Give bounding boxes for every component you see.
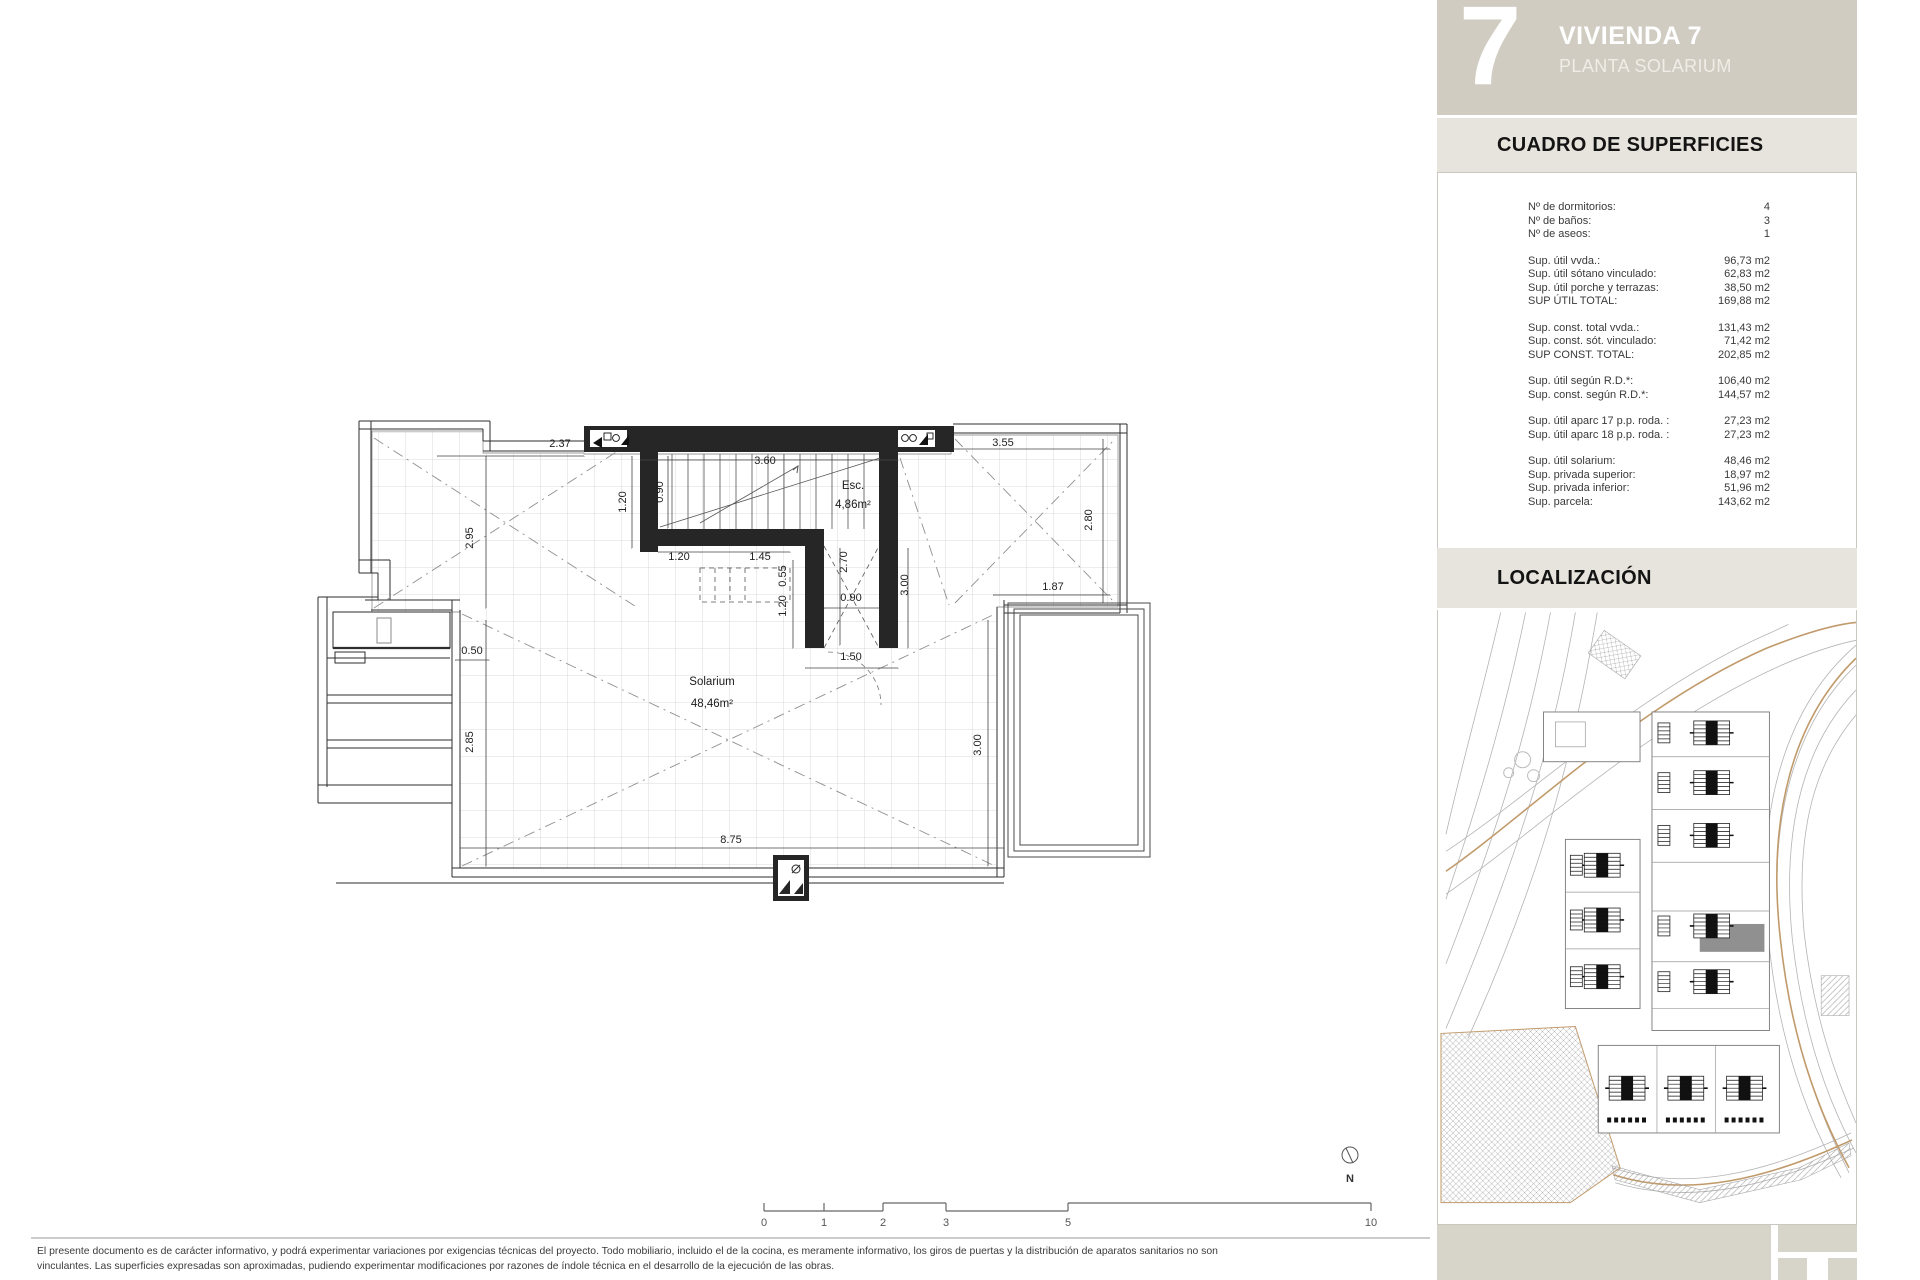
row-label: Nº de dormitorios: <box>1528 201 1616 215</box>
dimension-label: 2.80 <box>1083 509 1095 530</box>
row-label: Sup. útil aparc 18 p.p. roda. : <box>1528 429 1669 443</box>
table-row: Sup. útil aparc 17 p.p. roda. :27,23 m2 <box>1528 415 1770 429</box>
row-label: Sup. útil porche y terrazas: <box>1528 282 1659 296</box>
table-row: Sup. útil según R.D.*:106,40 m2 <box>1528 375 1770 389</box>
row-label: Sup. const. según R.D.*: <box>1528 389 1648 403</box>
row-label: Nº de baños: <box>1528 215 1591 229</box>
scale-bar-labels: 0123510 <box>761 1217 1377 1229</box>
bottom-symbol-box <box>773 855 809 901</box>
row-value: 62,83 m2 <box>1724 268 1770 282</box>
disclaimer-line-1: El presente documento es de carácter inf… <box>37 1244 1427 1259</box>
table-row: Sup. const. total vvda.:131,43 m2 <box>1528 322 1770 336</box>
row-label: Sup. const. sót. vinculado: <box>1528 335 1656 349</box>
dimension-label: 1.20 <box>617 491 629 512</box>
table-row: Sup. privada superior:18,97 m2 <box>1528 469 1770 483</box>
row-value: 71,42 m2 <box>1724 335 1770 349</box>
scale-tick-label: 10 <box>1365 1217 1377 1229</box>
row-value: 144,57 m2 <box>1718 389 1770 403</box>
row-value: 27,23 m2 <box>1724 429 1770 443</box>
table-row: Nº de aseos:1 <box>1528 228 1770 242</box>
room-label: 48,46m² <box>691 698 733 710</box>
table-group: Nº de dormitorios:4Nº de baños:3Nº de as… <box>1528 201 1770 242</box>
scale-tick-label: 1 <box>821 1217 827 1229</box>
table-row: SUP ÚTIL TOTAL:169,88 m2 <box>1528 295 1770 309</box>
table-group: Sup. útil vvda.:96,73 m2Sup. útil sótano… <box>1528 255 1770 309</box>
wall-symbol-left <box>590 430 629 448</box>
row-label: Sup. privada inferior: <box>1528 482 1630 496</box>
row-value: 96,73 m2 <box>1724 255 1770 269</box>
dimension-label: 0.50 <box>461 645 482 657</box>
table-row: Sup. útil porche y terrazas:38,50 m2 <box>1528 282 1770 296</box>
table-group: Sup. útil solarium:48,46 m2Sup. privada … <box>1528 455 1770 509</box>
sheet-subtitle: PLANTA SOLARIUM <box>1559 56 1732 77</box>
scale-tick-label: 3 <box>943 1217 949 1229</box>
row-label: SUP ÚTIL TOTAL: <box>1528 295 1617 309</box>
site-map-panel <box>1437 610 1857 1225</box>
row-value: 27,23 m2 <box>1724 415 1770 429</box>
sheet-title: VIVIENDA 7 <box>1559 22 1732 51</box>
surface-table-panel: Nº de dormitorios:4Nº de baños:3Nº de as… <box>1437 172 1857 608</box>
table-row: Sup. útil vvda.:96,73 m2 <box>1528 255 1770 269</box>
row-label: Nº de aseos: <box>1528 228 1591 242</box>
dimension-label: 0.55 <box>777 565 789 586</box>
disclaimer-text: El presente documento es de carácter inf… <box>37 1244 1427 1274</box>
disclaimer-line-2: vinculantes. Las superficies expresadas … <box>37 1259 1427 1274</box>
dimension-label: 2.85 <box>464 731 476 752</box>
plan-sheet: 2.373.603.551.200.902.952.851.201.450.55… <box>0 0 1920 1280</box>
scale-tick-label: 0 <box>761 1217 767 1229</box>
sheet-header: 7 VIVIENDA 7 PLANTA SOLARIUM <box>1437 0 1857 115</box>
dimension-label: 1.87 <box>1042 581 1063 593</box>
table-group: Sup. útil aparc 17 p.p. roda. :27,23 m2S… <box>1528 415 1770 442</box>
row-value: 3 <box>1764 215 1770 229</box>
room-label: Esc. <box>842 480 864 492</box>
table-row: Nº de baños:3 <box>1528 215 1770 229</box>
dimension-label: 1.20 <box>777 595 789 616</box>
row-label: Sup. útil aparc 17 p.p. roda. : <box>1528 415 1669 429</box>
room-label: 4,86m² <box>835 499 871 511</box>
table-row: Sup. privada inferior:51,96 m2 <box>1528 482 1770 496</box>
floor-plan-drawing: 2.373.603.551.200.902.952.851.201.450.55… <box>0 0 1437 1240</box>
dimension-label: 1.45 <box>749 551 770 563</box>
site-map <box>1438 610 1856 1223</box>
tree-symbols <box>1504 752 1540 782</box>
section-header-superficies: CUADRO DE SUPERFICIES <box>1437 118 1857 172</box>
row-value: 1 <box>1764 228 1770 242</box>
row-value: 4 <box>1764 201 1770 215</box>
scale-bar <box>764 1203 1371 1211</box>
row-label: Sup. privada superior: <box>1528 469 1636 483</box>
row-value: 106,40 m2 <box>1718 375 1770 389</box>
north-label: N <box>1346 1173 1354 1185</box>
dimension-label: 0.90 <box>654 481 666 502</box>
row-value: 169,88 m2 <box>1718 295 1770 309</box>
north-indicator: N <box>1342 1147 1358 1185</box>
dimension-label: 1.50 <box>840 651 861 663</box>
dimension-label: 3.00 <box>899 574 911 595</box>
dimension-label: 8.75 <box>720 834 741 846</box>
neighbor-structure-right <box>1008 603 1150 857</box>
scale-tick-label: 5 <box>1065 1217 1071 1229</box>
table-row: Sup. útil solarium:48,46 m2 <box>1528 455 1770 469</box>
dimension-label: 2.70 <box>838 551 850 572</box>
row-label: SUP CONST. TOTAL: <box>1528 349 1634 363</box>
table-group: Sup. const. total vvda.:131,43 m2Sup. co… <box>1528 322 1770 363</box>
table-row: SUP CONST. TOTAL:202,85 m2 <box>1528 349 1770 363</box>
table-row: Sup. const. según R.D.*:144,57 m2 <box>1528 389 1770 403</box>
dimension-label: 2.95 <box>464 527 476 548</box>
row-label: Sup. útil vvda.: <box>1528 255 1600 269</box>
studio-logo-block <box>1828 1258 1857 1280</box>
row-label: Sup. útil sótano vinculado: <box>1528 268 1656 282</box>
row-value: 18,97 m2 <box>1724 469 1770 483</box>
dimension-label: 0.90 <box>840 592 861 604</box>
row-value: 143,62 m2 <box>1718 496 1770 510</box>
table-row: Sup. parcela:143,62 m2 <box>1528 496 1770 510</box>
section-header-localizacion: LOCALIZACIÓN <box>1437 548 1857 608</box>
dimension-label: 3.55 <box>992 437 1013 449</box>
row-value: 131,43 m2 <box>1718 322 1770 336</box>
studio-logo-block <box>1778 1225 1857 1252</box>
row-value: 38,50 m2 <box>1724 282 1770 296</box>
table-row: Sup. útil aparc 18 p.p. roda. :27,23 m2 <box>1528 429 1770 443</box>
sheet-titles: VIVIENDA 7 PLANTA SOLARIUM <box>1559 22 1732 77</box>
table-row: Nº de dormitorios:4 <box>1528 201 1770 215</box>
room-label: Solarium <box>689 676 734 688</box>
row-label: Sup. útil según R.D.*: <box>1528 375 1633 389</box>
unit-number: 7 <box>1459 0 1521 106</box>
scale-tick-label: 2 <box>880 1217 886 1229</box>
row-label: Sup. const. total vvda.: <box>1528 322 1639 336</box>
table-row: Sup. útil sótano vinculado:62,83 m2 <box>1528 268 1770 282</box>
dimension-label: 3.00 <box>972 734 984 755</box>
dimension-label: 3.60 <box>754 455 775 467</box>
dimension-label: 2.37 <box>549 438 570 450</box>
sidebar-footer-bar <box>1437 1225 1771 1280</box>
surface-table: Nº de dormitorios:4Nº de baños:3Nº de as… <box>1528 201 1770 522</box>
table-row: Sup. const. sót. vinculado:71,42 m2 <box>1528 335 1770 349</box>
dimension-label: 1.20 <box>668 551 689 563</box>
table-group: Sup. útil según R.D.*:106,40 m2Sup. cons… <box>1528 375 1770 402</box>
studio-logo-block <box>1778 1258 1807 1280</box>
row-value: 48,46 m2 <box>1724 455 1770 469</box>
row-label: Sup. parcela: <box>1528 496 1593 510</box>
row-value: 202,85 m2 <box>1718 349 1770 363</box>
row-label: Sup. útil solarium: <box>1528 455 1615 469</box>
wall-symbol-right <box>898 430 935 447</box>
row-value: 51,96 m2 <box>1724 482 1770 496</box>
